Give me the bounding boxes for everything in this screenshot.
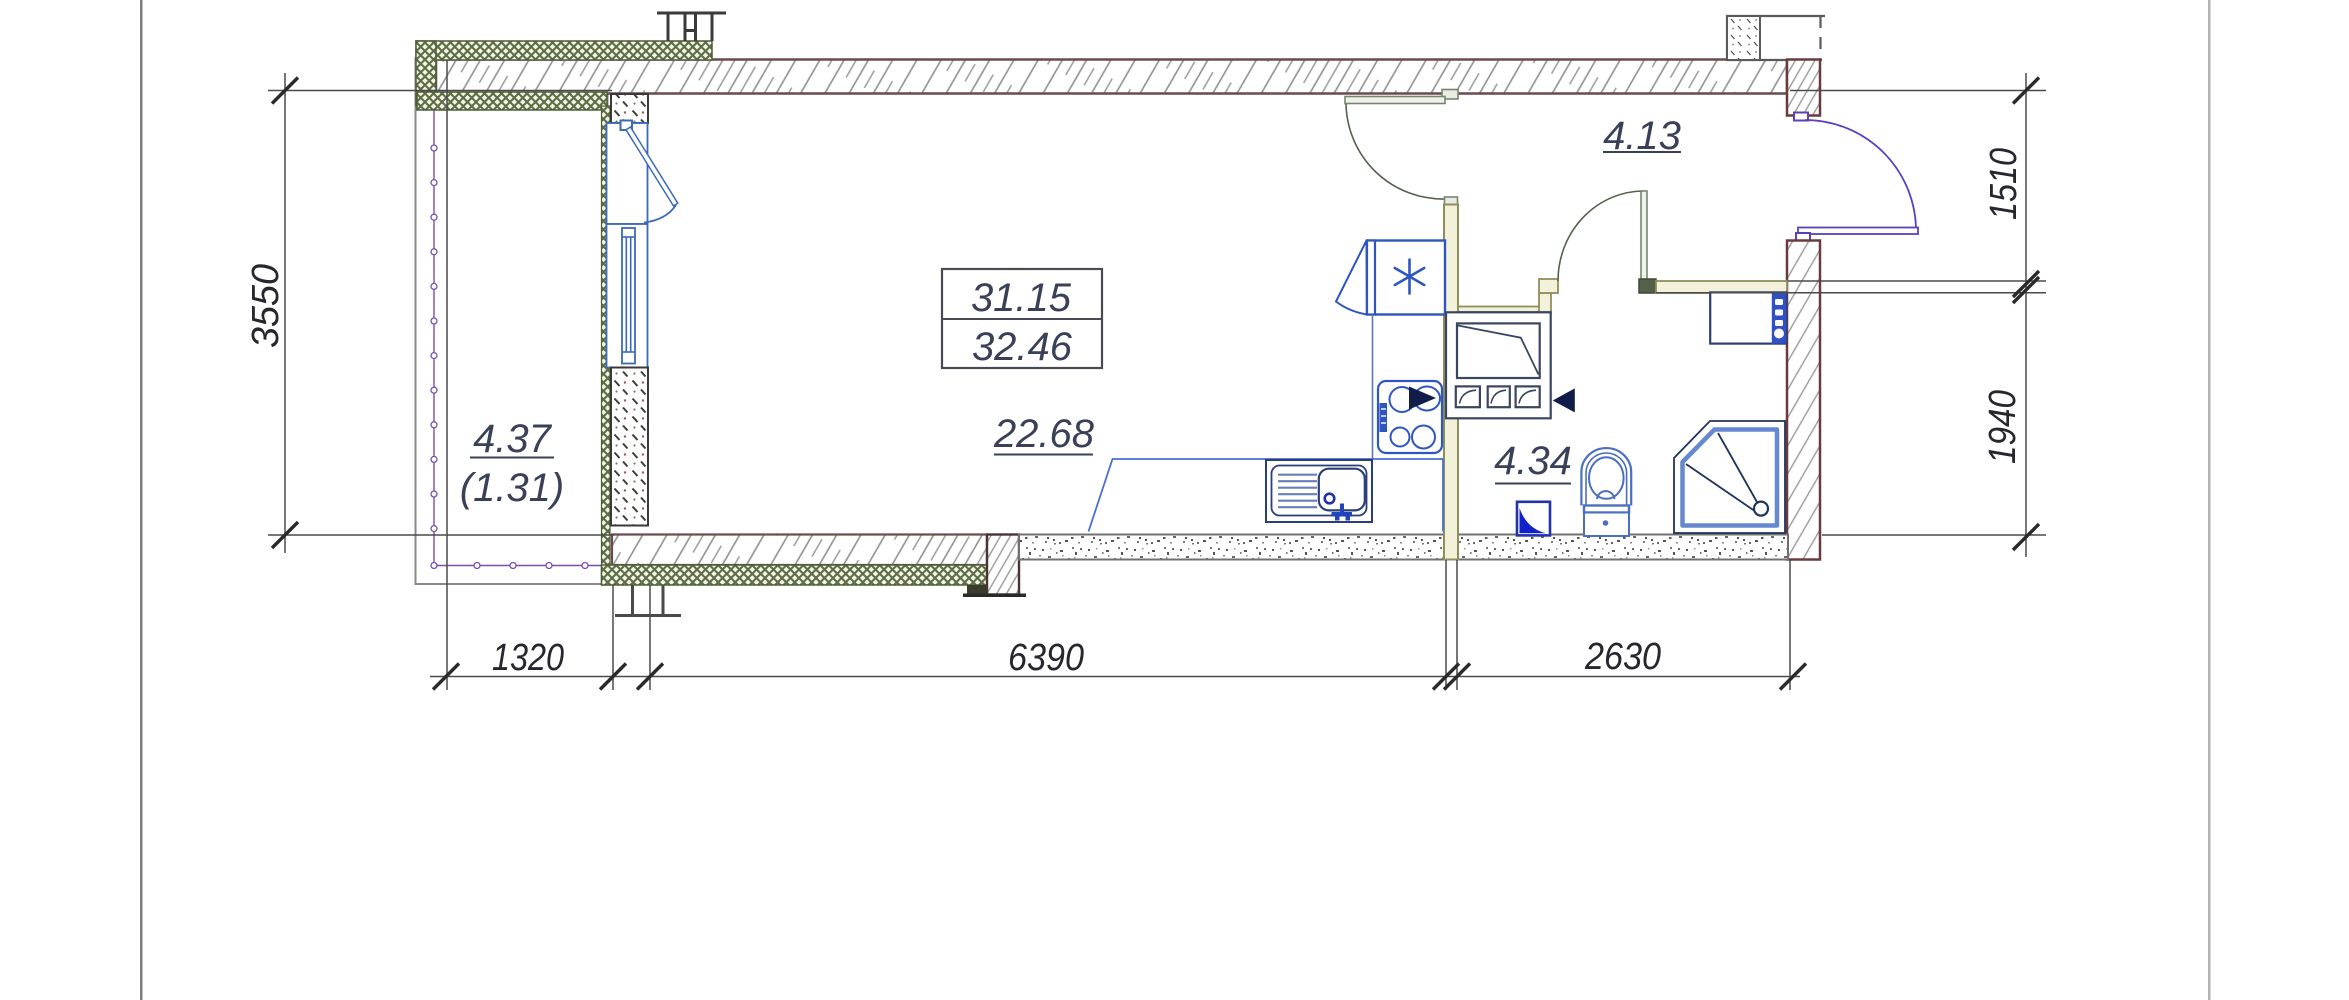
svg-text:4.37: 4.37 [473, 417, 553, 461]
svg-text:32.46: 32.46 [972, 325, 1073, 369]
svg-text:31.15: 31.15 [971, 276, 1072, 320]
svg-text:3550: 3550 [245, 264, 287, 348]
svg-text:2630: 2630 [1584, 636, 1661, 678]
svg-text:1320: 1320 [492, 637, 564, 679]
svg-text:(1.31): (1.31) [460, 466, 565, 510]
svg-text:1940: 1940 [1982, 390, 2024, 464]
svg-text:22.68: 22.68 [993, 412, 1095, 456]
svg-text:1510: 1510 [1983, 148, 2025, 220]
svg-text:6390: 6390 [1008, 637, 1084, 679]
svg-text:4.34: 4.34 [1494, 439, 1572, 483]
